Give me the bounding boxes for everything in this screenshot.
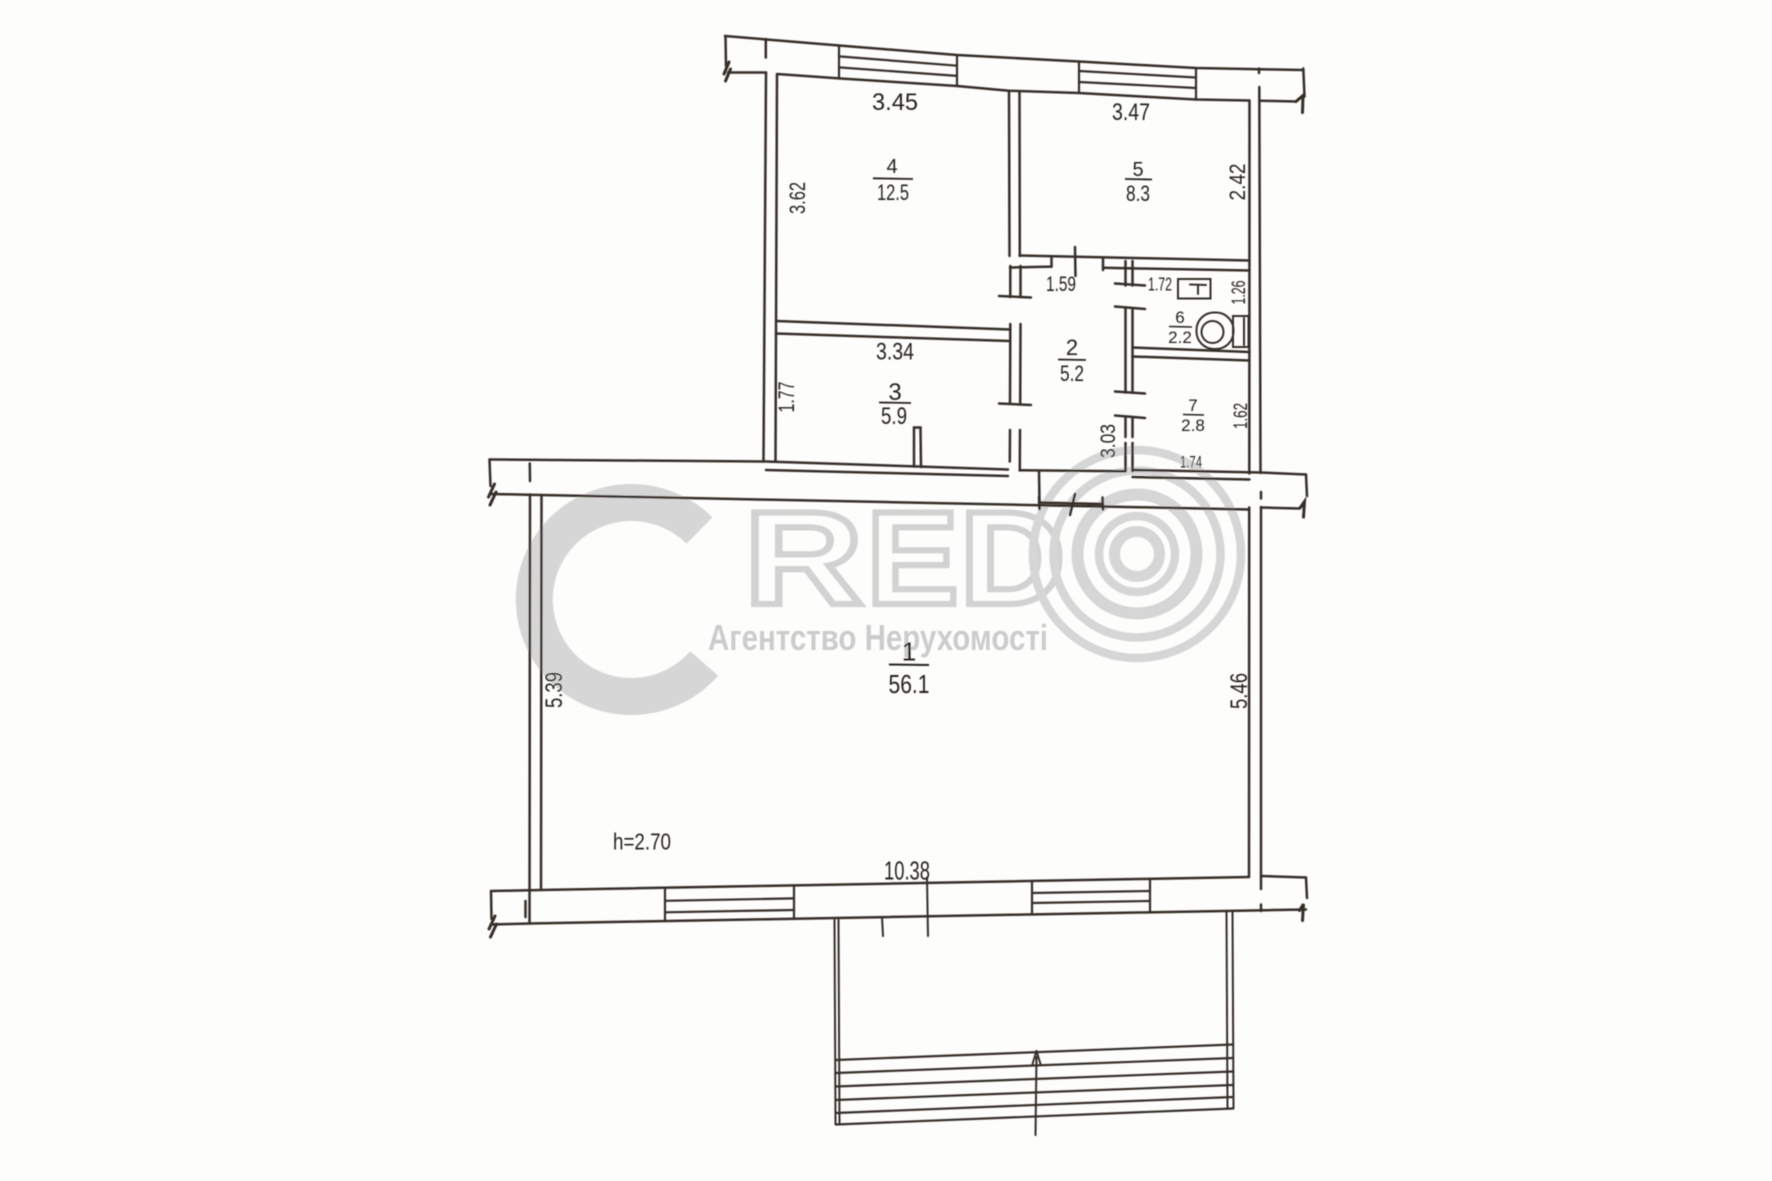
svg-text:E: E (866, 483, 958, 632)
svg-text:5: 5 (1132, 159, 1143, 181)
svg-text:1.72: 1.72 (1148, 275, 1172, 295)
svg-text:Агентство Нерухомості: Агентство Нерухомості (708, 617, 1048, 658)
svg-text:56.1: 56.1 (889, 669, 930, 699)
svg-text:R: R (744, 483, 863, 632)
svg-text:2.42: 2.42 (1225, 164, 1250, 201)
svg-text:1.74: 1.74 (1180, 453, 1202, 472)
svg-text:1: 1 (902, 637, 916, 667)
svg-text:1.59: 1.59 (1046, 273, 1076, 296)
svg-text:8.3: 8.3 (1126, 181, 1150, 206)
svg-text:5.39: 5.39 (541, 672, 568, 708)
svg-text:2: 2 (1066, 335, 1078, 360)
svg-text:1.62: 1.62 (1231, 403, 1252, 429)
svg-text:2.8: 2.8 (1181, 416, 1205, 435)
svg-text:6: 6 (1175, 308, 1184, 327)
svg-text:4: 4 (886, 156, 897, 178)
svg-text:1.26: 1.26 (1229, 281, 1250, 305)
svg-text:7: 7 (1188, 396, 1197, 415)
svg-text:h=2.70: h=2.70 (613, 829, 671, 855)
svg-text:2.2: 2.2 (1168, 328, 1192, 347)
svg-text:1.77: 1.77 (774, 382, 799, 413)
svg-text:3.45: 3.45 (872, 89, 918, 116)
svg-text:3.62: 3.62 (785, 182, 810, 214)
svg-text:5.2: 5.2 (1060, 361, 1084, 386)
svg-text:3.34: 3.34 (876, 339, 914, 366)
svg-text:3.47: 3.47 (1112, 99, 1150, 126)
svg-text:3.03: 3.03 (1097, 424, 1120, 458)
svg-text:10.38: 10.38 (884, 856, 930, 886)
svg-text:12.5: 12.5 (877, 180, 909, 205)
svg-text:5.9: 5.9 (881, 403, 907, 430)
svg-text:5.46: 5.46 (1226, 673, 1253, 709)
